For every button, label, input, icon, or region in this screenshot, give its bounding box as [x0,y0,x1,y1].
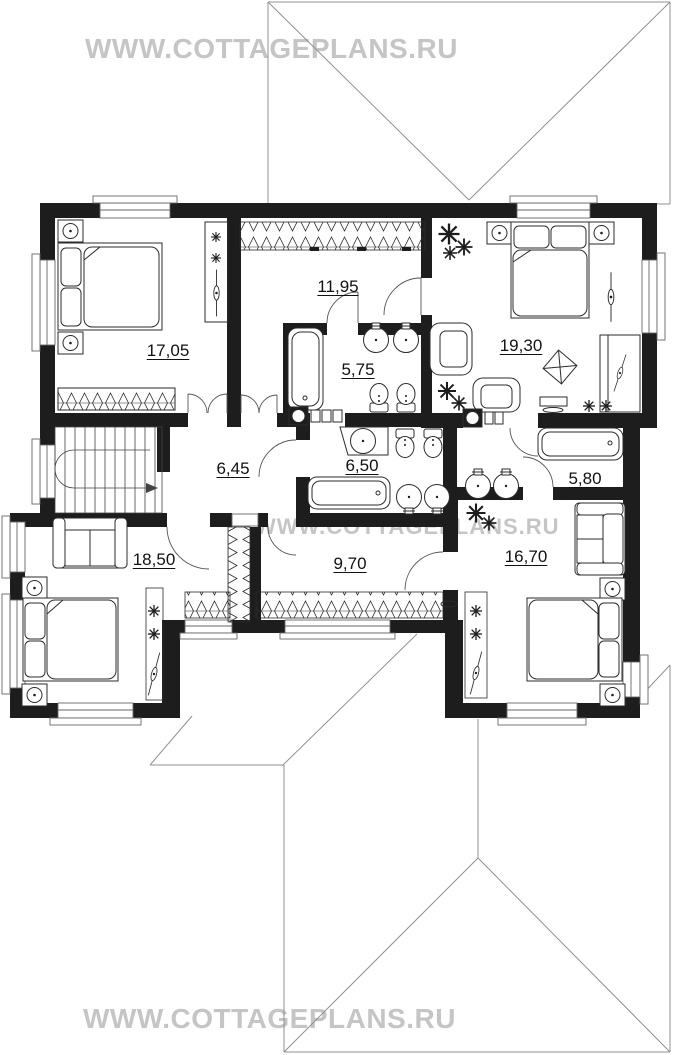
toilet-icon [397,384,415,413]
roof-outline-bottom [150,634,670,1052]
nightstand-icon [600,578,625,600]
sink-icon [466,469,491,499]
armchair-icon [430,323,472,375]
sink-icon [494,469,519,499]
nightstand-icon [589,222,614,244]
bathtub-icon [308,477,390,509]
floor-plan-drawing [0,0,673,1055]
nightstand-icon [22,577,47,599]
plant-icon [467,504,497,531]
door-arc [241,395,259,413]
toilet-icon [424,429,442,458]
washing-machine-icon [289,407,342,425]
window [498,703,586,725]
stairs-icon [55,427,162,513]
door-arc [405,552,443,590]
window [50,703,141,725]
area-label-bedroom-bottom-left: 18,50 [133,550,176,570]
radiator-icon [256,592,443,618]
radiator-icon [205,222,228,322]
nightstand-icon [58,220,83,242]
area-label-hall: 6,45 [216,459,249,479]
plant-icon [583,400,595,412]
toilet-icon [370,384,388,413]
area-label-bathroom-middle: 6,50 [345,456,378,476]
area-label-corridor: 9,70 [333,554,366,574]
plant-icon [438,382,467,411]
door-arc [510,428,538,456]
radiator-icon [608,272,614,321]
toilet-icon [396,429,414,458]
area-label-bedroom-top-left: 17,05 [147,341,190,361]
tv-stand-icon [540,397,567,413]
bed-icon [23,598,118,681]
nightstand-icon [487,222,512,244]
window [32,439,55,504]
armchair-icon [473,378,520,412]
shelf-radiator-icon [465,592,487,698]
chair-icon [543,350,577,384]
bathtub-icon [288,328,323,410]
area-label-bedroom-bottom-right: 16,70 [505,547,548,567]
area-label-bedroom-top-right: 19,30 [500,336,543,356]
floor-plan-page: WWW.COTTAGEPLANS.RU WWW.COTTAGEPLANS.RU … [0,0,673,1055]
area-label-dressing-room: 11,95 [317,277,358,297]
door-arc [259,395,277,413]
shelf-radiator-icon [146,588,163,700]
radiator-icon [185,592,230,618]
door-arc [268,527,296,555]
nightstand-icon [22,684,47,706]
bed-icon [58,243,162,330]
area-label-bathroom-top: 5,75 [341,360,374,380]
roof-outline-top [268,2,670,204]
radiator-icon [58,388,175,410]
area-label-bathroom-right: 5,80 [568,469,601,489]
window [623,655,648,704]
window [180,620,237,639]
nightstand-icon [58,332,83,354]
window [280,620,395,639]
window [2,594,25,694]
window [93,196,177,218]
bed-icon [511,222,589,318]
door-arc [259,440,296,477]
window [510,196,597,218]
bathtub-icon [538,428,623,460]
door-arc [384,278,421,315]
plant-icon [600,400,612,412]
door-arc [208,394,227,413]
vanity-sink-icon [340,427,388,455]
wardrobe-icon [228,527,250,622]
door-arc [523,457,553,487]
window [32,254,55,351]
bed-icon [527,598,622,681]
window [642,253,665,340]
sink-icon [397,485,422,515]
sofa-icon [575,503,625,575]
nightstand-icon [600,684,625,706]
window [2,516,25,578]
sofa-icon [53,518,127,568]
plant-icon [439,224,473,261]
wardrobe-icon [240,222,425,251]
door-arc [188,394,207,413]
